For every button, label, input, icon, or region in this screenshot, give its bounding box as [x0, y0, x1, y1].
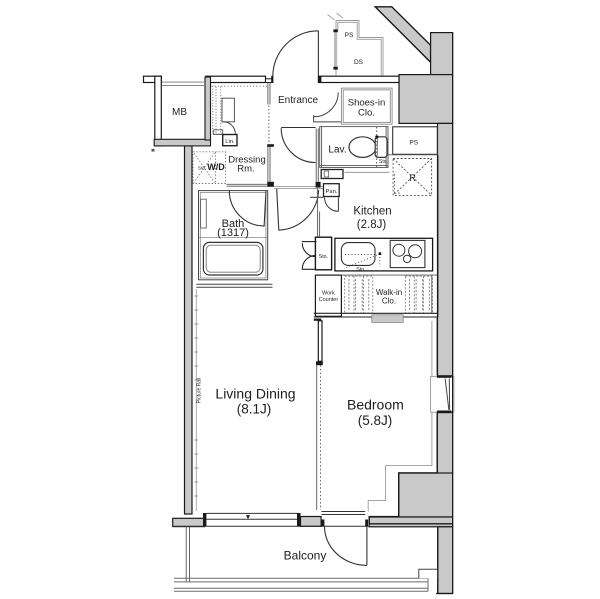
- svg-text:Living Dining: Living Dining: [215, 386, 295, 402]
- svg-text:Pan.: Pan.: [326, 189, 338, 195]
- svg-text:Clo.: Clo.: [382, 296, 396, 305]
- svg-text:DS: DS: [354, 59, 364, 66]
- svg-text:R: R: [409, 173, 416, 183]
- svg-text:PS: PS: [409, 139, 418, 146]
- svg-text:Rm.: Rm.: [237, 164, 254, 175]
- svg-text:Balcony: Balcony: [284, 549, 327, 563]
- svg-text:Kitchen: Kitchen: [353, 206, 391, 218]
- svg-text:(2.8J): (2.8J): [357, 219, 387, 231]
- svg-text:Lin.: Lin.: [225, 139, 235, 145]
- svg-text:Std.: Std.: [198, 165, 206, 170]
- svg-text:Lav.: Lav.: [328, 144, 346, 155]
- svg-text:(5.8J): (5.8J): [358, 413, 393, 428]
- svg-text:Bedroom: Bedroom: [347, 396, 404, 412]
- svg-text:Sto.: Sto.: [379, 159, 388, 165]
- svg-text:Sto.: Sto.: [356, 267, 365, 273]
- svg-text:PS: PS: [345, 32, 354, 39]
- svg-text:Work: Work: [322, 291, 335, 297]
- svg-text:Entrance: Entrance: [278, 95, 318, 106]
- svg-text:(8.1J): (8.1J): [237, 402, 272, 417]
- svg-text:Clo.: Clo.: [358, 108, 375, 119]
- svg-text:(1317): (1317): [217, 227, 249, 239]
- svg-text:MB: MB: [172, 107, 187, 118]
- svg-text:W/D: W/D: [207, 162, 225, 172]
- svg-text:Sto.: Sto.: [319, 254, 328, 260]
- svg-text:Picture Rail: Picture Rail: [197, 378, 203, 404]
- svg-text:Counter: Counter: [319, 297, 339, 303]
